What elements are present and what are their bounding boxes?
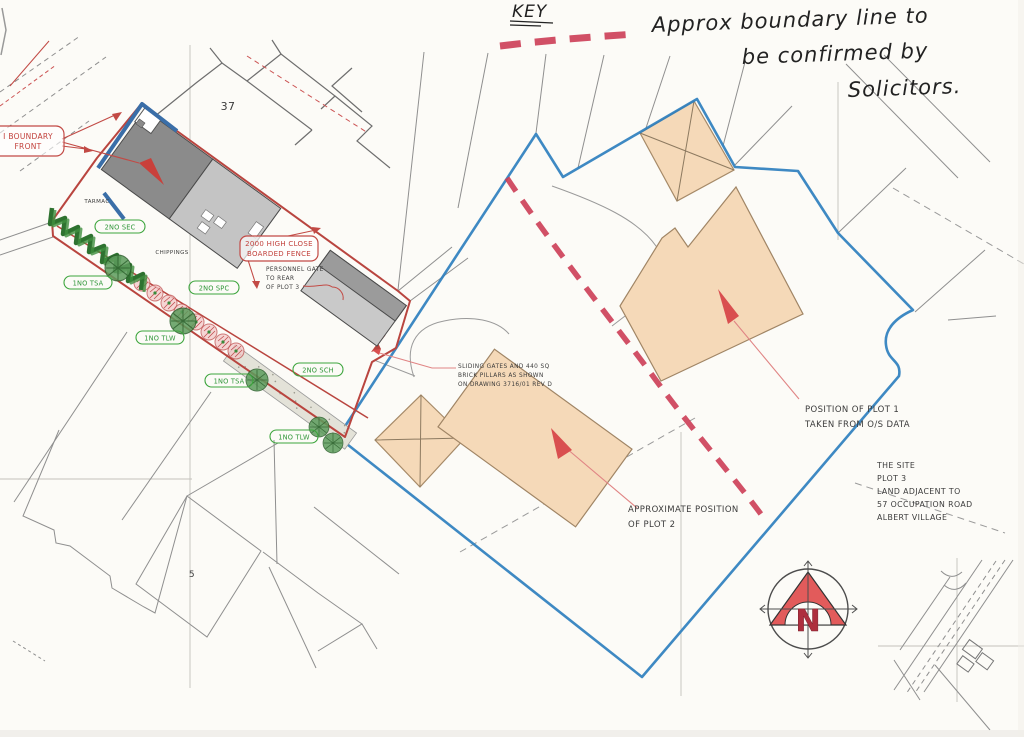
svg-text:OF PLOT 2: OF PLOT 2: [628, 520, 675, 530]
scan-shadow-right: [1018, 0, 1024, 737]
svg-text:BOARDED FENCE: BOARDED FENCE: [247, 250, 311, 258]
svg-text:ON DRAWING 3716/01 REV D: ON DRAWING 3716/01 REV D: [458, 382, 552, 388]
chippings-label: CHIPPINGS: [155, 250, 188, 256]
svg-text:1NO TLW: 1NO TLW: [278, 434, 310, 442]
svg-text:2000 HIGH CLOSE: 2000 HIGH CLOSE: [245, 240, 313, 248]
tree-symbol: [246, 369, 268, 391]
svg-text:2NO SEC: 2NO SEC: [105, 224, 136, 232]
tree-symbol: [309, 417, 329, 437]
svg-text:I BOUNDARY: I BOUNDARY: [3, 132, 53, 141]
tarmac-label: TARMAC: [83, 199, 109, 205]
svg-text:LAND ADJACENT TO: LAND ADJACENT TO: [877, 487, 961, 496]
svg-text:2NO SCH: 2NO SCH: [302, 367, 334, 375]
svg-text:PERSONNEL GATE: PERSONNEL GATE: [266, 267, 324, 273]
svg-text:BRICK PILLARS AS SHOWN: BRICK PILLARS AS SHOWN: [458, 373, 544, 379]
svg-text:1NO TLW: 1NO TLW: [144, 335, 176, 343]
svg-text:APPROXIMATE POSITION: APPROXIMATE POSITION: [628, 505, 739, 515]
svg-text:57 OCCUPATION ROAD: 57 OCCUPATION ROAD: [877, 500, 973, 509]
svg-text:ALBERT VILLAGE: ALBERT VILLAGE: [877, 513, 947, 522]
tree-symbol: [323, 433, 343, 453]
scan-shadow-bottom: [0, 730, 1024, 737]
tree-symbol: [170, 308, 196, 334]
north-letter: N: [795, 604, 820, 639]
svg-text:2NO SPC: 2NO SPC: [199, 285, 230, 293]
site-plan-page: KEY Approx boundary line to be confirmed…: [0, 0, 1024, 737]
svg-text:POSITION OF PLOT 1: POSITION OF PLOT 1: [805, 405, 899, 415]
svg-text:OF PLOT 3: OF PLOT 3: [266, 285, 300, 291]
parcel-number-5: 5: [189, 570, 195, 580]
svg-text:THE SITE: THE SITE: [876, 461, 915, 470]
house-number-37: 37: [221, 100, 236, 113]
svg-text:FRONT: FRONT: [14, 142, 41, 151]
svg-text:1NO TSA: 1NO TSA: [73, 280, 104, 288]
sliding-gates-note: SLIDING GATES AND 440 SQ BRICK PILLARS A…: [458, 364, 552, 388]
svg-text:TO REAR: TO REAR: [265, 276, 294, 282]
svg-text:SLIDING GATES AND 440 SQ: SLIDING GATES AND 440 SQ: [458, 364, 550, 370]
key-note-line3: Solicitors.: [847, 74, 961, 102]
key-title: KEY: [512, 2, 548, 22]
svg-text:TAKEN FROM O/S DATA: TAKEN FROM O/S DATA: [804, 420, 910, 430]
fence-label: 2000 HIGH CLOSE BOARDED FENCE: [240, 236, 318, 261]
svg-text:PLOT 3: PLOT 3: [877, 474, 907, 483]
site-plan-drawing: KEY Approx boundary line to be confirmed…: [0, 0, 1024, 737]
svg-text:1NO TSA: 1NO TSA: [214, 378, 245, 386]
boundary-front-label: I BOUNDARY FRONT: [0, 126, 64, 156]
